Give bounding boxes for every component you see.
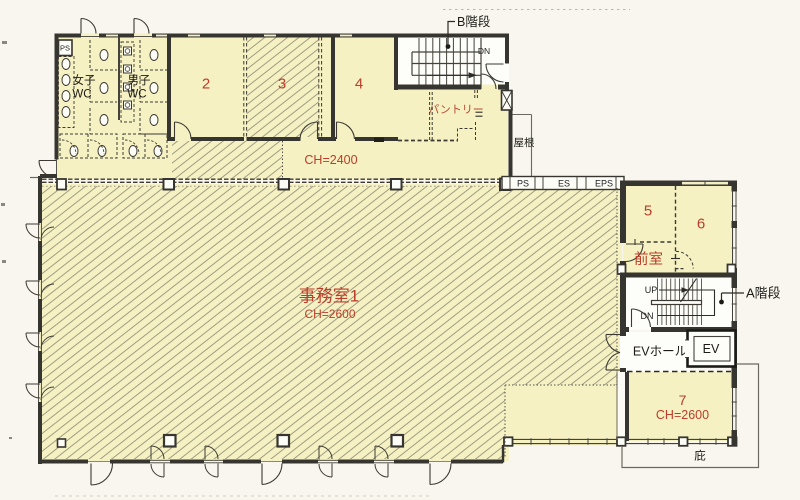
svg-text:CH=2600: CH=2600 — [304, 307, 355, 321]
svg-text:3: 3 — [278, 76, 286, 93]
svg-text:6: 6 — [697, 216, 705, 233]
svg-text:PS: PS — [517, 179, 529, 189]
svg-text:EVホール: EVホール — [633, 345, 687, 359]
svg-text:屋根: 屋根 — [514, 136, 535, 149]
svg-text:ES: ES — [558, 179, 570, 189]
svg-text:PS: PS — [60, 44, 70, 53]
svg-text:WC: WC — [72, 89, 91, 101]
svg-text:CH=2400: CH=2400 — [304, 153, 357, 167]
svg-text:UP: UP — [645, 285, 658, 295]
svg-text:EV: EV — [703, 342, 720, 356]
svg-text:B階段: B階段 — [457, 14, 490, 29]
svg-text:女子: 女子 — [73, 73, 96, 87]
svg-text:前室: 前室 — [634, 251, 663, 268]
svg-text:庇: 庇 — [694, 449, 706, 463]
svg-text:パントリー: パントリー — [428, 103, 484, 116]
svg-text:7: 7 — [679, 392, 687, 408]
svg-text:5: 5 — [644, 203, 652, 220]
svg-text:A階段: A階段 — [746, 286, 781, 301]
svg-text:事務室1: 事務室1 — [299, 287, 359, 306]
svg-text:男子: 男子 — [128, 74, 151, 87]
svg-text:WC: WC — [127, 89, 146, 101]
svg-text:DN: DN — [478, 46, 490, 56]
svg-text:4: 4 — [355, 76, 363, 93]
svg-text:2: 2 — [202, 76, 210, 93]
svg-text:EPS: EPS — [595, 179, 613, 189]
svg-text:CH=2600: CH=2600 — [656, 408, 709, 422]
